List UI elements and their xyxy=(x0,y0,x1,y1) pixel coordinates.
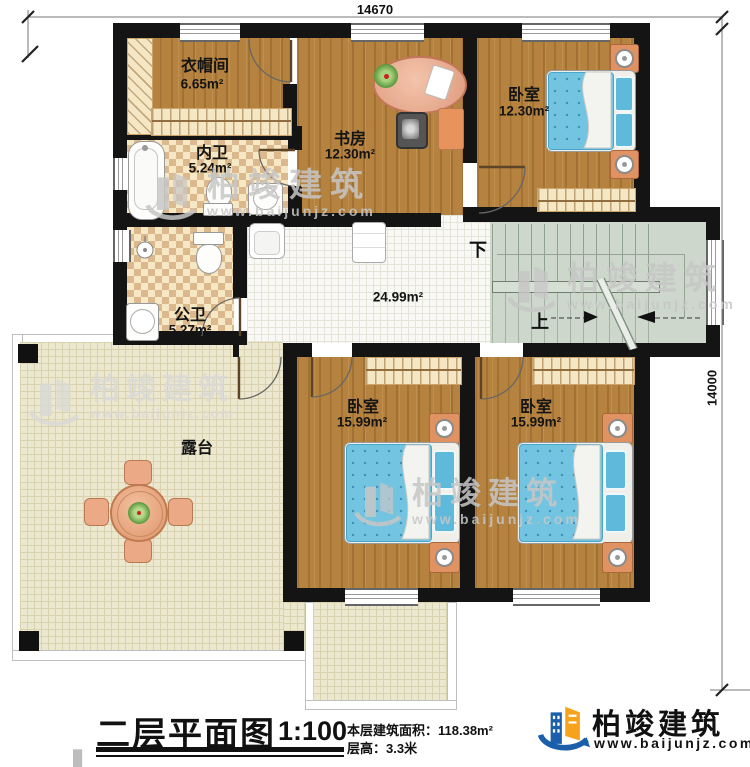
stair-break-fill xyxy=(597,278,637,350)
room-area-bedroom-right: 15.99m² xyxy=(511,415,561,430)
room-area-cloakroom: 6.65m² xyxy=(181,77,224,92)
dimension-width-label: 14670 xyxy=(357,2,393,17)
bed-blanket-folds xyxy=(402,72,611,539)
room-label-terrace: 露台 xyxy=(181,434,213,458)
door-arcs xyxy=(202,40,525,399)
brand-website: www.baijunjz.com xyxy=(594,735,750,751)
plan-info-block: 本层建筑面积：118.38m² 层高：3.3米 xyxy=(347,722,493,758)
room-area-bedroom-top: 12.30m² xyxy=(499,104,549,119)
plan-annotation-overlay xyxy=(0,0,750,767)
room-label-bedroom-top: 卧室 xyxy=(508,81,540,105)
dimension-height-label: 14000 xyxy=(705,370,720,406)
room-area-public-bath: 5.27m² xyxy=(169,323,212,338)
dimension-ticks xyxy=(22,11,728,696)
room-label-bedroom-left: 卧室 xyxy=(347,393,379,417)
room-label-bedroom-right: 卧室 xyxy=(520,393,552,417)
plan-floor-area: 本层建筑面积：118.38m² xyxy=(347,722,493,740)
room-label-cloakroom: 衣帽间 xyxy=(181,52,229,76)
room-area-hall: 24.99m² xyxy=(373,290,423,305)
room-label-study: 书房 xyxy=(334,125,366,149)
room-area-inner-bath: 5.24m² xyxy=(189,161,232,176)
floor-plan-page: 下 上 xyxy=(0,0,750,767)
stair-arrow-icon xyxy=(584,311,598,323)
plan-floor-height: 层高：3.3米 xyxy=(347,740,493,758)
title-underline-thin xyxy=(96,755,344,757)
plan-scale: 1:100 xyxy=(278,716,347,747)
room-area-study: 12.30m² xyxy=(325,147,375,162)
dimension-lines xyxy=(28,10,750,690)
room-label-inner-bath: 内卫 xyxy=(196,139,228,163)
door-leaves xyxy=(239,40,525,399)
brand-logo-icon xyxy=(536,700,590,754)
room-label-public-bath: 公卫 xyxy=(174,301,206,325)
title-underline-thick xyxy=(96,747,344,752)
shower-icon xyxy=(137,236,153,258)
stair-arrow-icon xyxy=(637,311,655,323)
room-area-bedroom-left: 15.99m² xyxy=(337,415,387,430)
